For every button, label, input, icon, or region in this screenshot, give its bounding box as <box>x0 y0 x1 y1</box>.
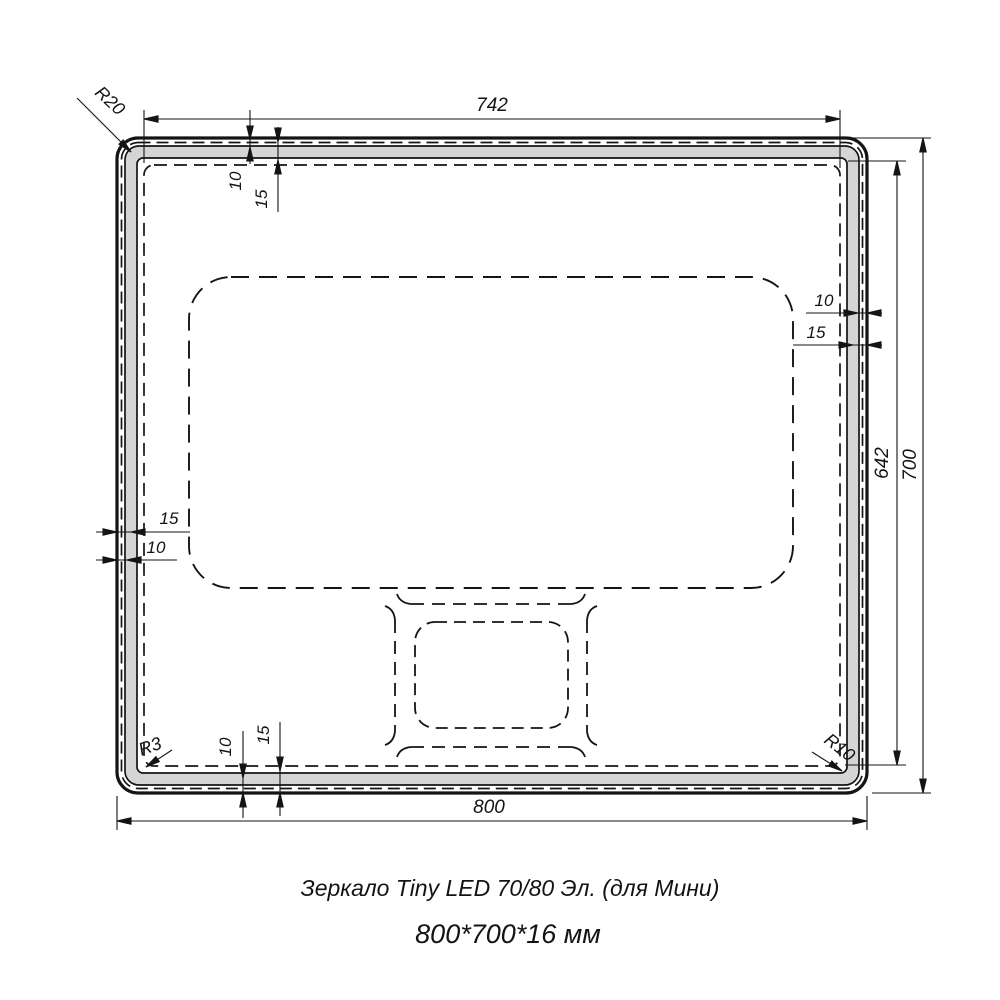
dim-bl-10-label: 10 <box>216 737 235 756</box>
light-zone <box>189 277 793 588</box>
dim-left-10-label: 10 <box>147 538 166 557</box>
mirror-technical-drawing: 742 800 700 642 <box>0 0 1000 1000</box>
callout-r20: R20 <box>77 82 131 152</box>
dim-tl-15-label: 15 <box>252 189 271 208</box>
dim-bottom-left-offsets: 10 15 <box>216 722 283 818</box>
caption: Зеркало Tiny LED 70/80 Эл. (для Мини) 80… <box>301 875 720 949</box>
radius-inner-bl-label: R3 <box>136 733 164 760</box>
mirror-outer-edge <box>117 138 867 793</box>
frame-hidden-edge <box>122 143 863 789</box>
radius-callouts: R20 R3 R10 <box>77 82 859 771</box>
caption-size: 800*700*16 мм <box>415 919 601 949</box>
dim-top-left-offsets: 10 15 <box>226 110 281 212</box>
arrow-down <box>920 779 926 793</box>
dimensions: 742 800 700 642 <box>96 95 931 830</box>
sensor-inner-contour <box>415 622 568 728</box>
radius-outer-label: R20 <box>91 82 129 119</box>
arrow-left <box>144 116 158 122</box>
arrow-up <box>920 138 926 152</box>
dim-bottom-width-label: 800 <box>473 797 505 818</box>
light-zone-contour <box>189 277 793 588</box>
arrow-right <box>826 116 840 122</box>
led-band-inner-edge <box>137 158 847 773</box>
mirror-frame <box>117 138 867 793</box>
dim-tl-10-label: 10 <box>226 171 245 190</box>
callout-r3: R3 <box>136 733 172 767</box>
arrow-down <box>894 751 900 765</box>
dim-right-outer-height-label: 700 <box>900 449 921 481</box>
dim-bottom-width: 800 <box>117 796 867 830</box>
led-band <box>131 152 853 779</box>
dim-right-offsets: 10 15 <box>793 291 882 348</box>
drawing-sheet: 742 800 700 642 <box>0 0 1000 1000</box>
dim-left-15-label: 15 <box>160 509 179 528</box>
dim-bl-15-label: 15 <box>254 725 273 744</box>
dim-right-10-label: 10 <box>815 291 834 310</box>
dim-top-width-label: 742 <box>476 95 508 116</box>
inner-zone-contour <box>144 165 840 766</box>
sensor-zone <box>385 594 597 757</box>
led-band-outer-edge <box>125 146 859 785</box>
sensor-corner-hooks <box>385 594 597 757</box>
dim-right-15-label: 15 <box>807 323 826 342</box>
caption-title: Зеркало Tiny LED 70/80 Эл. (для Мини) <box>301 875 720 901</box>
dim-right-inner-height-label: 642 <box>872 447 893 479</box>
arrow-left <box>117 818 131 824</box>
arrow-right <box>853 818 867 824</box>
arrow-up <box>894 161 900 175</box>
dim-left-offsets: 15 10 <box>96 509 190 563</box>
